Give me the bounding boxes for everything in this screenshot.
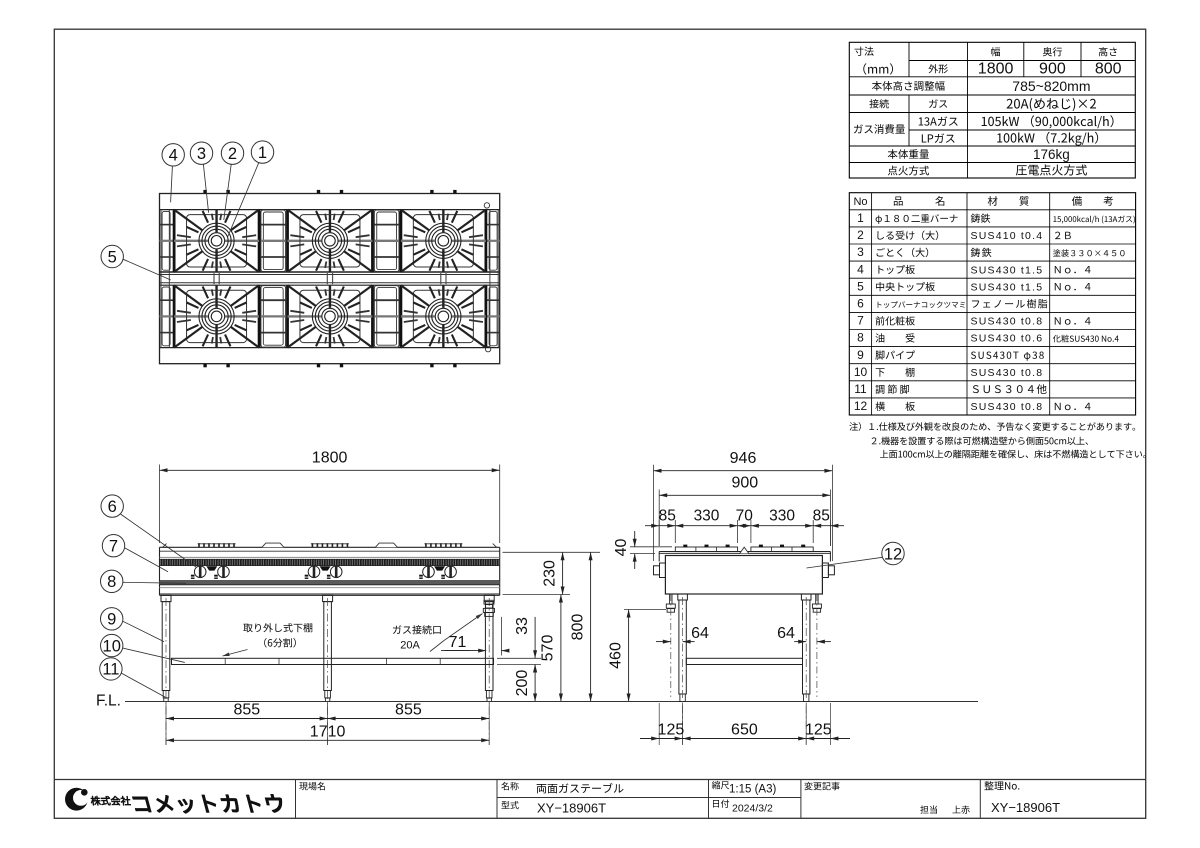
svg-text:SUS430 t0.8: SUS430 t0.8 — [971, 367, 1044, 379]
svg-text:No: No — [853, 196, 867, 208]
svg-text:SUS430 t0.8: SUS430 t0.8 — [971, 316, 1044, 328]
svg-text:2: 2 — [857, 228, 864, 242]
svg-text:85: 85 — [813, 508, 830, 525]
svg-text:1800: 1800 — [978, 61, 1014, 78]
svg-text:125: 125 — [658, 722, 685, 739]
svg-text:9: 9 — [107, 611, 116, 629]
svg-text:SUS430 t1.5: SUS430 t1.5 — [971, 281, 1044, 293]
svg-text:855: 855 — [395, 702, 422, 719]
svg-text:F.L.: F.L. — [96, 693, 121, 710]
svg-text:4: 4 — [169, 147, 178, 165]
svg-text:2024/3/2: 2024/3/2 — [732, 803, 773, 815]
svg-text:900: 900 — [731, 475, 758, 492]
svg-text:64: 64 — [691, 625, 709, 642]
svg-text:SUS430 t1.5: SUS430 t1.5 — [971, 264, 1044, 276]
svg-text:176kg: 176kg — [1033, 147, 1070, 162]
svg-text:1710: 1710 — [310, 723, 346, 740]
svg-text:460: 460 — [607, 642, 624, 669]
svg-text:10: 10 — [103, 637, 121, 655]
svg-text:7: 7 — [857, 314, 864, 328]
svg-text:SUS430 t0.6: SUS430 t0.6 — [971, 333, 1044, 345]
svg-text:11: 11 — [102, 661, 119, 679]
svg-text:9: 9 — [857, 348, 864, 362]
svg-text:SUS410 t0.4: SUS410 t0.4 — [971, 230, 1044, 242]
svg-text:85: 85 — [659, 508, 676, 525]
svg-text:10: 10 — [854, 365, 868, 379]
svg-text:785~820mm: 785~820mm — [1012, 78, 1090, 94]
svg-text:3: 3 — [857, 245, 864, 259]
svg-text:650: 650 — [731, 722, 758, 739]
svg-text:1: 1 — [258, 144, 267, 162]
svg-text:900: 900 — [1039, 61, 1066, 78]
svg-text:4: 4 — [857, 262, 864, 276]
svg-text:12: 12 — [854, 399, 868, 413]
svg-text:6: 6 — [857, 297, 864, 311]
svg-text:230: 230 — [542, 560, 559, 587]
svg-text:3: 3 — [197, 145, 206, 163]
svg-text:5: 5 — [857, 279, 864, 293]
svg-text:11: 11 — [854, 382, 867, 396]
svg-text:64: 64 — [777, 625, 795, 642]
svg-text:40: 40 — [613, 539, 630, 557]
svg-text:SUS430 t0.8: SUS430 t0.8 — [971, 401, 1044, 413]
svg-text:71: 71 — [449, 634, 467, 651]
svg-text:855: 855 — [233, 702, 260, 719]
svg-text:800: 800 — [569, 614, 586, 641]
svg-text:XY−18906T: XY−18906T — [537, 801, 606, 816]
svg-text:12: 12 — [884, 545, 902, 563]
svg-text:1:15 (A3): 1:15 (A3) — [729, 784, 776, 796]
svg-text:6: 6 — [108, 498, 117, 516]
svg-text:946: 946 — [730, 450, 757, 467]
svg-text:330: 330 — [769, 508, 795, 525]
svg-text:330: 330 — [694, 508, 720, 525]
svg-text:33: 33 — [514, 617, 531, 635]
svg-text:200: 200 — [514, 670, 531, 697]
svg-text:20A: 20A — [400, 640, 420, 652]
svg-text:125: 125 — [805, 722, 832, 739]
svg-text:8: 8 — [857, 331, 864, 345]
svg-text:XY−18906T: XY−18906T — [991, 800, 1060, 815]
svg-text:7: 7 — [109, 538, 118, 556]
svg-text:5: 5 — [108, 248, 117, 266]
svg-text:2: 2 — [228, 145, 237, 163]
svg-text:800: 800 — [1095, 61, 1122, 78]
svg-text:1800: 1800 — [312, 450, 348, 467]
svg-text:1: 1 — [857, 211, 864, 225]
svg-text:8: 8 — [107, 573, 116, 591]
svg-text:70: 70 — [736, 508, 754, 525]
svg-text:570: 570 — [540, 635, 557, 662]
